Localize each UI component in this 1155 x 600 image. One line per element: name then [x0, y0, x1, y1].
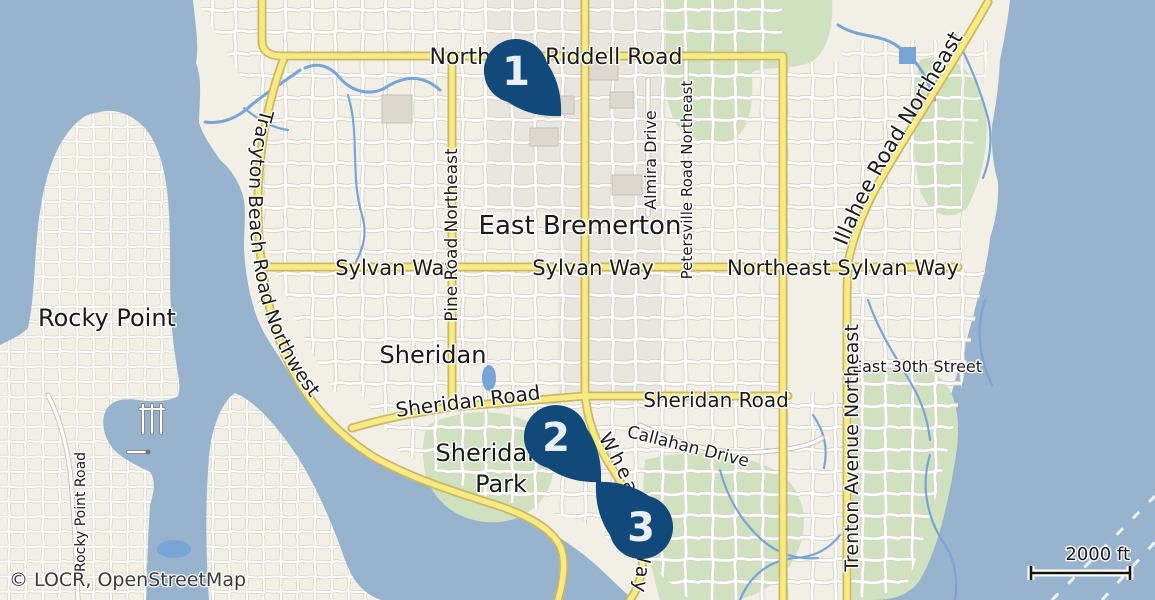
label-almira-drive: Almira Drive: [641, 110, 660, 210]
label-east-30th-street: East 30th Street: [852, 357, 982, 376]
label-rocky-point: Rocky Point: [38, 304, 176, 332]
label-sheridan: Sheridan: [380, 341, 487, 369]
label-trenton-avenue: Trenton Avenue Northeast: [841, 324, 863, 573]
label-petersville-road: Petersville Road Northeast: [678, 81, 696, 280]
label-riddell-road: Northeast Riddell Road: [430, 45, 683, 70]
marker-2-number: 2: [542, 415, 570, 461]
label-northeast-sylvan-way: Northeast Sylvan Way: [727, 256, 959, 280]
map-attribution: © LOCR, OpenStreetMap: [9, 569, 246, 591]
label-east-bremerton: East Bremerton: [479, 211, 682, 241]
label-sylvan-way-center: Sylvan Way: [532, 256, 654, 280]
marker-3-number: 3: [627, 505, 655, 551]
label-sheridan-park-line2: Park: [475, 470, 527, 498]
marker-1-number: 1: [502, 49, 530, 95]
label-rocky-point-road: Rocky Point Road: [73, 452, 89, 572]
map-svg: Northeast Riddell Road East Bremerton Sy…: [0, 0, 1155, 600]
label-pine-road: Pine Road Northeast: [442, 148, 462, 322]
map-canvas[interactable]: Northeast Riddell Road East Bremerton Sy…: [0, 0, 1155, 600]
label-sheridan-road-east: Sheridan Road: [643, 388, 789, 412]
scale-bar-label: 2000 ft: [1065, 544, 1130, 565]
label-sylvan-way-west: Sylvan Way: [335, 256, 457, 280]
